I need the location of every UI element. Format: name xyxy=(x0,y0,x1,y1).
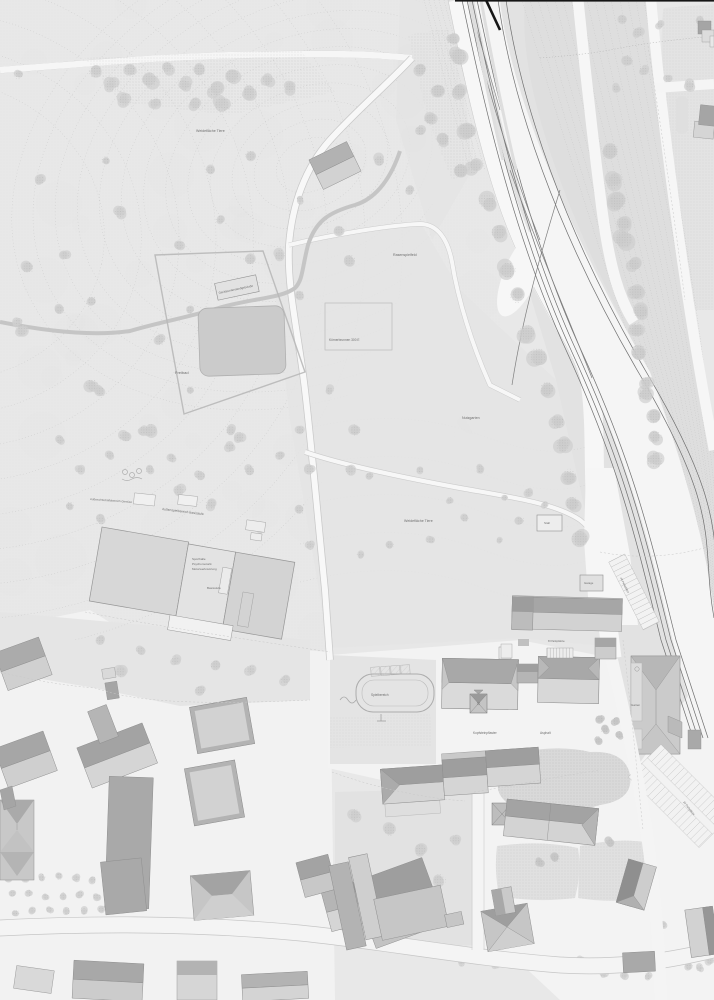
svg-text:Nutzgarten: Nutzgarten xyxy=(462,416,480,420)
svg-text:Sporthalle: Sporthalle xyxy=(192,557,206,561)
svg-text:Weidefläche Tiere: Weidefläche Tiere xyxy=(404,519,433,523)
svg-text:Basisstufe: Basisstufe xyxy=(207,586,221,590)
svg-text:Kopfsteinpflaster: Kopfsteinpflaster xyxy=(473,731,498,735)
svg-text:Psychomotorik: Psychomotorik xyxy=(192,562,212,566)
svg-text:Freibad: Freibad xyxy=(175,370,189,375)
svg-text:Stall: Stall xyxy=(544,521,550,525)
svg-text:Garage: Garage xyxy=(584,581,594,585)
svg-text:Motorwerknutzung: Motorwerknutzung xyxy=(192,567,217,571)
svg-text:Spielbereich: Spielbereich xyxy=(371,693,389,697)
svg-text:Garten: Garten xyxy=(631,703,641,707)
svg-text:Weidefläche Tiere: Weidefläche Tiere xyxy=(196,129,225,133)
svg-text:Rasenspielfeld: Rasenspielfeld xyxy=(393,253,417,257)
svg-text:8 Parkplätze: 8 Parkplätze xyxy=(548,639,565,643)
svg-text:Körnerbrunnen 300 E: Körnerbrunnen 300 E xyxy=(329,338,359,342)
svg-text:Asphalt: Asphalt xyxy=(540,731,551,735)
